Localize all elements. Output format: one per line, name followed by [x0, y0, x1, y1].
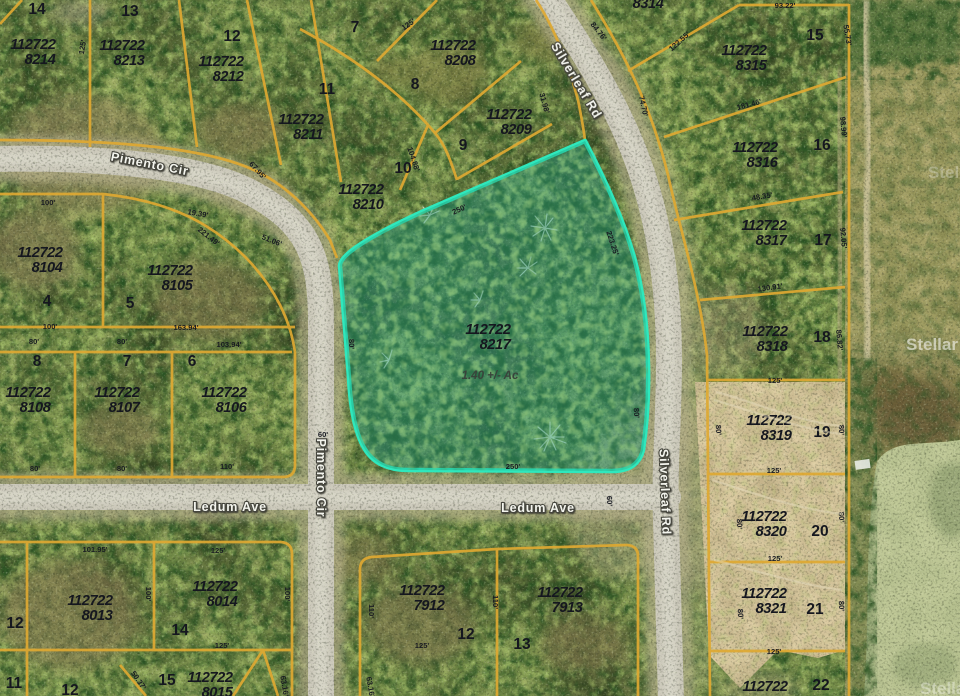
- svg-text:103.94': 103.94': [216, 340, 241, 349]
- svg-text:22: 22: [812, 677, 829, 694]
- svg-text:8: 8: [33, 353, 42, 370]
- svg-text:12: 12: [6, 615, 23, 632]
- svg-text:110': 110': [491, 595, 500, 609]
- svg-text:93.22': 93.22': [775, 1, 796, 10]
- svg-text:110': 110': [367, 604, 376, 618]
- svg-text:80': 80': [347, 339, 356, 350]
- svg-text:12: 12: [223, 28, 240, 45]
- svg-text:4: 4: [43, 293, 52, 310]
- svg-text:12: 12: [61, 682, 78, 696]
- svg-text:100': 100': [283, 587, 292, 602]
- svg-text:125': 125': [211, 546, 226, 555]
- svg-text:7: 7: [351, 19, 360, 36]
- svg-text:125': 125': [415, 641, 430, 650]
- svg-text:125': 125': [215, 641, 230, 650]
- svg-text:125': 125': [767, 466, 782, 475]
- svg-text:10: 10: [394, 160, 411, 177]
- svg-text:80': 80': [736, 609, 746, 620]
- svg-text:11: 11: [6, 675, 23, 692]
- svg-text:8314: 8314: [633, 0, 664, 12]
- svg-text:100': 100': [43, 322, 58, 331]
- svg-text:92.05': 92.05': [838, 227, 849, 249]
- svg-text:80': 80': [30, 464, 40, 473]
- svg-text:7: 7: [123, 353, 132, 370]
- svg-text:1.40 +/- Ac: 1.40 +/- Ac: [462, 370, 519, 382]
- svg-text:12: 12: [457, 626, 474, 643]
- svg-text:80': 80': [29, 337, 39, 346]
- svg-text:9: 9: [459, 137, 468, 154]
- svg-text:112722: 112722: [742, 679, 787, 695]
- svg-text:100': 100': [144, 587, 153, 602]
- svg-text:Ledum Ave: Ledum Ave: [501, 501, 575, 515]
- svg-text:80': 80': [117, 464, 127, 473]
- svg-text:125': 125': [768, 376, 783, 385]
- svg-text:14: 14: [171, 622, 189, 639]
- svg-text:15: 15: [806, 27, 824, 44]
- svg-text:13: 13: [513, 636, 531, 653]
- svg-text:60': 60': [318, 430, 328, 439]
- svg-text:80': 80': [735, 519, 745, 530]
- svg-text:8: 8: [411, 76, 420, 93]
- svg-text:98.99': 98.99': [838, 116, 849, 138]
- svg-text:80': 80': [714, 425, 724, 436]
- svg-text:21: 21: [806, 601, 824, 618]
- svg-text:Ledum Ave: Ledum Ave: [193, 500, 267, 514]
- svg-text:86.82': 86.82': [834, 329, 845, 351]
- svg-text:80': 80': [837, 601, 847, 612]
- svg-text:250': 250': [506, 462, 521, 471]
- svg-text:Pimento Cir: Pimento Cir: [314, 439, 328, 518]
- svg-text:80': 80': [117, 337, 127, 346]
- svg-text:125': 125': [768, 554, 783, 563]
- svg-text:18: 18: [813, 329, 831, 346]
- svg-text:20: 20: [811, 523, 828, 540]
- svg-text:5: 5: [126, 295, 135, 312]
- svg-text:11: 11: [319, 81, 336, 98]
- svg-text:16: 16: [813, 137, 831, 154]
- svg-text:60': 60': [605, 496, 615, 507]
- svg-text:Stellar M: Stellar M: [906, 335, 960, 354]
- svg-text:110': 110': [220, 462, 234, 471]
- svg-text:80': 80': [632, 408, 642, 419]
- svg-text:Stellar: Stellar: [920, 679, 960, 696]
- svg-text:101.95': 101.95': [82, 545, 107, 554]
- svg-text:100': 100': [41, 198, 56, 207]
- svg-text:6: 6: [188, 353, 197, 370]
- svg-text:125': 125': [767, 647, 782, 656]
- svg-text:17: 17: [814, 232, 831, 249]
- svg-text:14: 14: [28, 1, 46, 18]
- svg-text:13: 13: [121, 3, 139, 20]
- svg-text:Stellar: Stellar: [928, 163, 960, 182]
- svg-text:15: 15: [158, 672, 176, 689]
- svg-text:163.94': 163.94': [173, 323, 198, 332]
